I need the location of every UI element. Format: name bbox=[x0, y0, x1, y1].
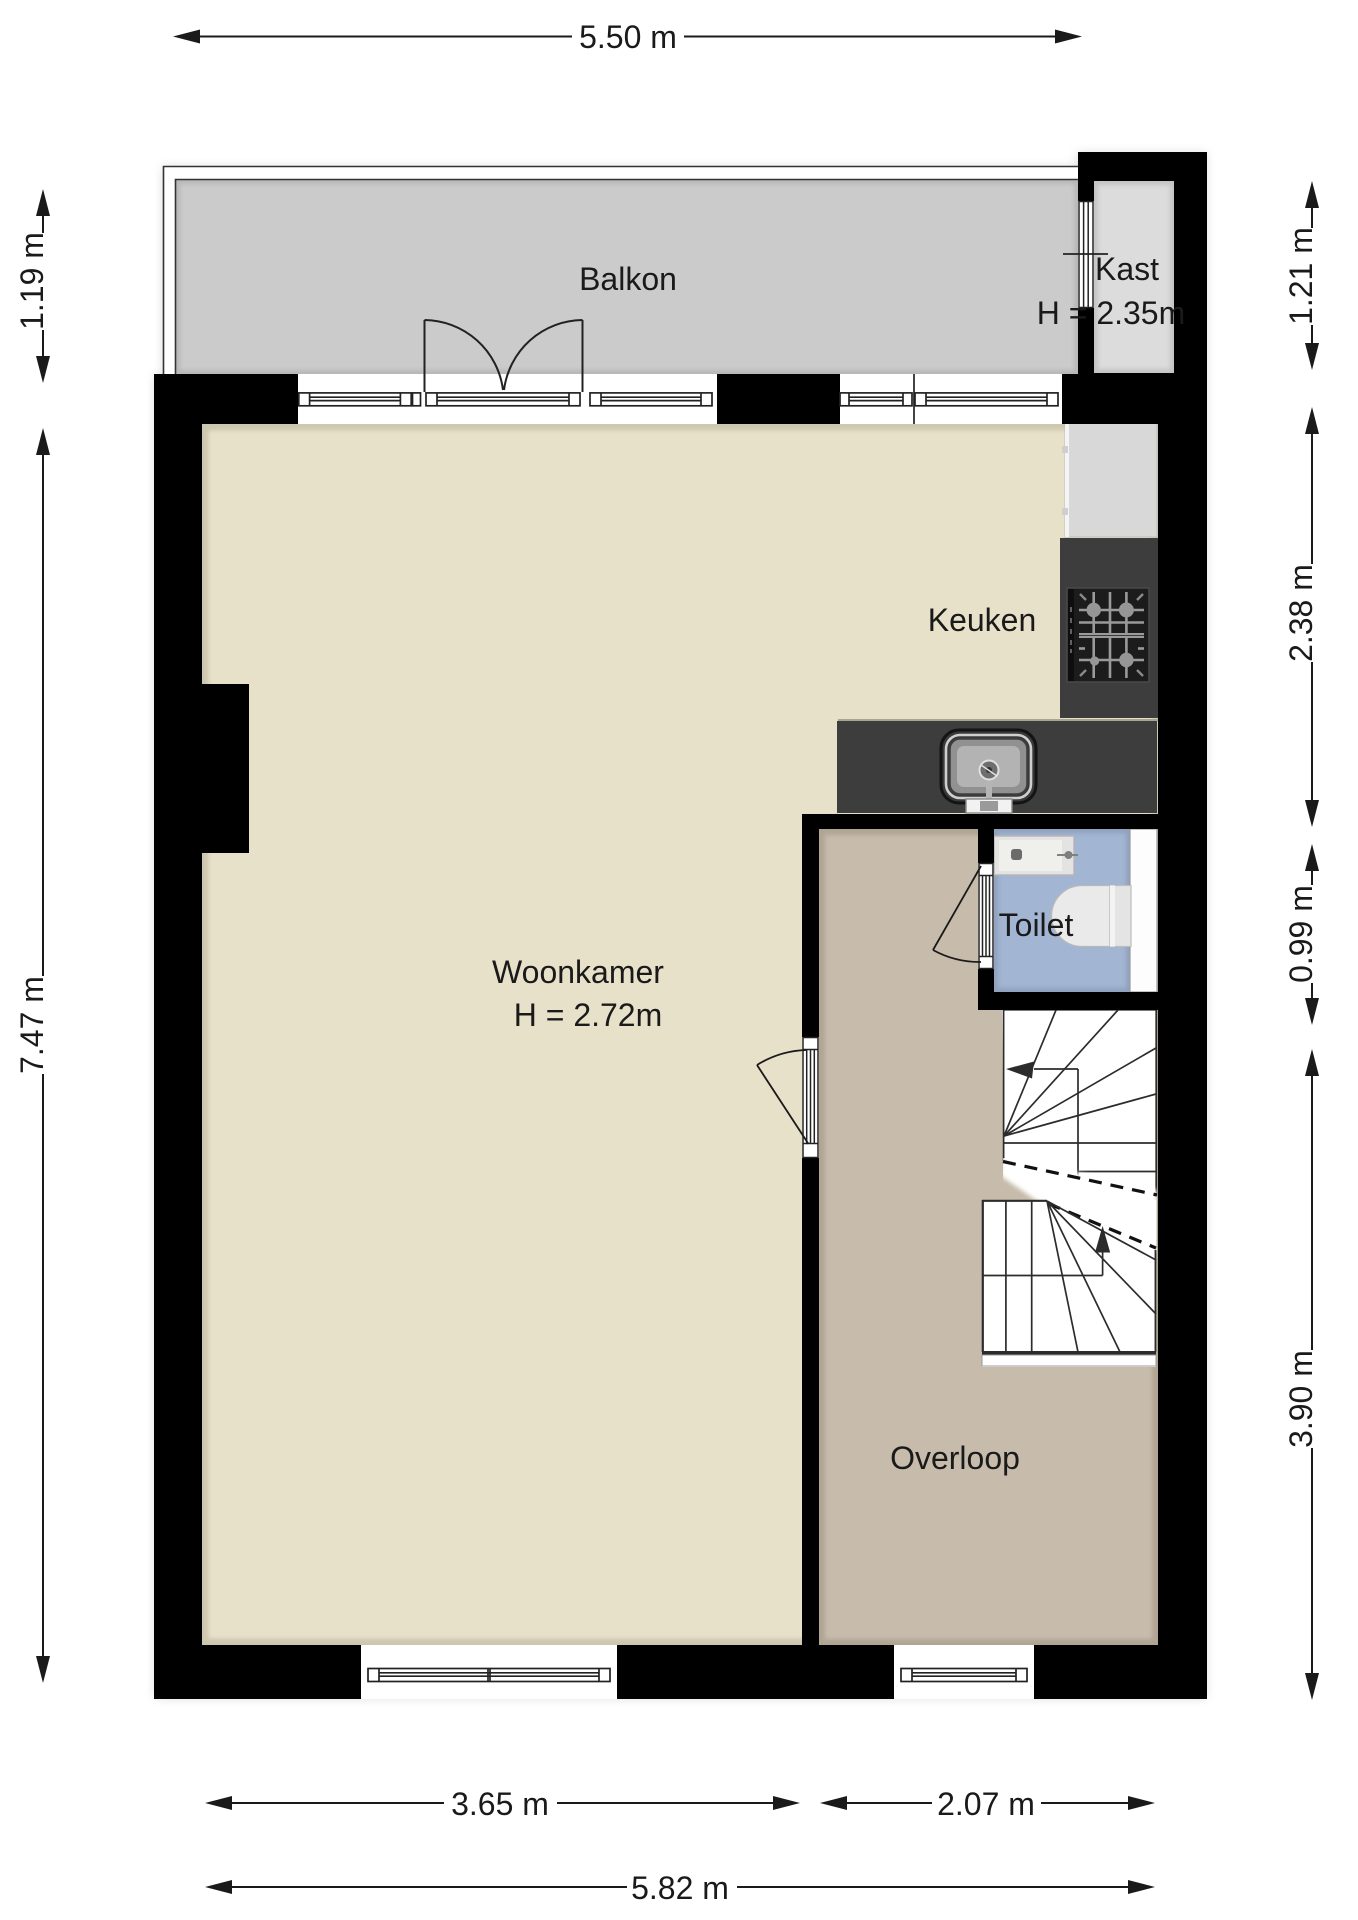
svg-text:1.19 m: 1.19 m bbox=[14, 232, 50, 330]
svg-text:3.65 m: 3.65 m bbox=[451, 1786, 549, 1822]
svg-text:Balkon: Balkon bbox=[579, 261, 677, 297]
svg-text:2.38 m: 2.38 m bbox=[1283, 564, 1319, 662]
svg-text:H = 2.35m: H = 2.35m bbox=[1037, 295, 1186, 331]
svg-text:Overloop: Overloop bbox=[890, 1440, 1020, 1476]
svg-text:7.47 m: 7.47 m bbox=[14, 976, 50, 1074]
svg-text:5.50 m: 5.50 m bbox=[579, 19, 677, 55]
svg-text:Keuken: Keuken bbox=[928, 602, 1037, 638]
svg-text:2.07 m: 2.07 m bbox=[937, 1786, 1035, 1822]
svg-text:1.21 m: 1.21 m bbox=[1283, 227, 1319, 325]
svg-text:0.99 m: 0.99 m bbox=[1283, 885, 1319, 983]
svg-text:3.90 m: 3.90 m bbox=[1283, 1350, 1319, 1448]
svg-text:Kast: Kast bbox=[1095, 251, 1159, 287]
svg-text:5.82 m: 5.82 m bbox=[631, 1870, 729, 1906]
svg-text:H = 2.72m: H = 2.72m bbox=[514, 997, 663, 1033]
svg-text:Woonkamer: Woonkamer bbox=[492, 954, 664, 990]
svg-text:Toilet: Toilet bbox=[999, 907, 1074, 943]
